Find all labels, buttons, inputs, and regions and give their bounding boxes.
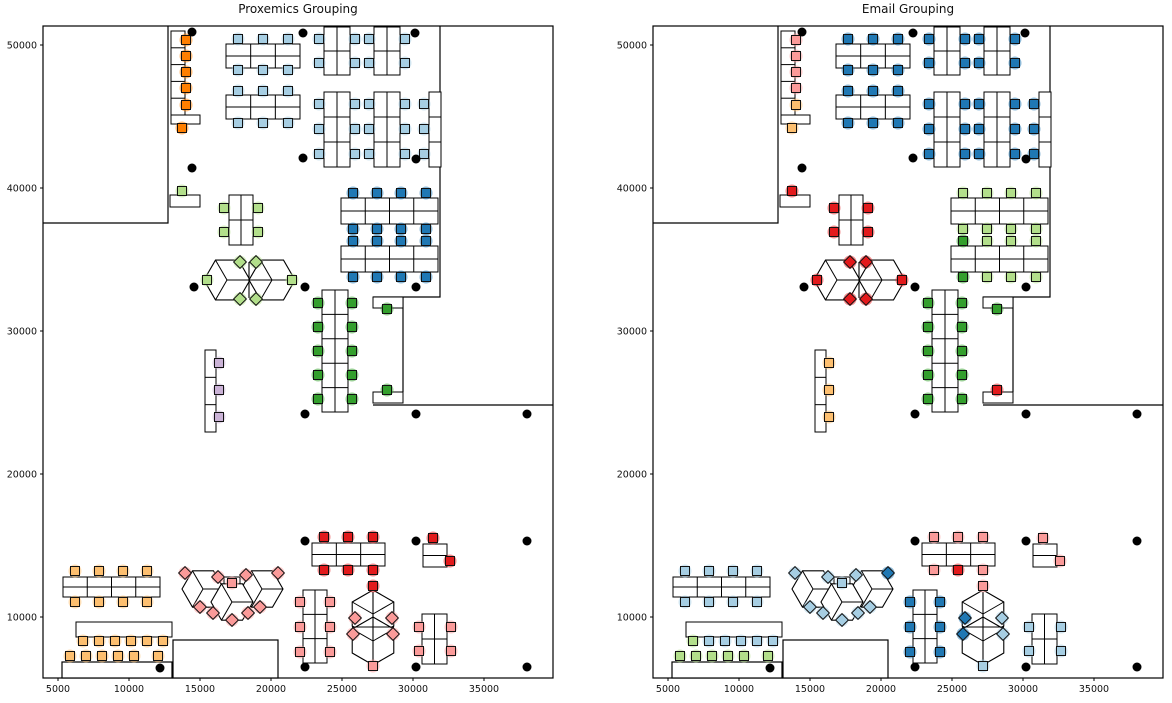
seat-marker	[422, 225, 431, 234]
y-tick-label: 40000	[7, 184, 37, 195]
seat-marker	[844, 66, 853, 75]
seat-marker	[838, 579, 847, 588]
seat-marker	[1039, 534, 1048, 543]
seat-marker	[1011, 59, 1020, 68]
column-dot	[1133, 663, 1142, 672]
seat-marker	[422, 273, 431, 282]
x-tick-label: 30000	[1008, 684, 1038, 695]
seat-marker	[228, 579, 237, 588]
x-tick-label: 5000	[656, 684, 680, 695]
room-outline	[783, 640, 888, 678]
seat-marker	[143, 567, 152, 576]
x-tick-label: 30000	[398, 684, 428, 695]
seat-marker	[961, 35, 970, 44]
seat-marker	[446, 557, 455, 566]
seat-marker	[930, 566, 939, 575]
email-panel: 5000100001500020000250003000035000100002…	[617, 26, 1163, 695]
seat-marker	[954, 533, 963, 542]
room-outline	[672, 662, 782, 678]
seat-marker	[422, 237, 431, 246]
seat-marker	[825, 359, 834, 368]
seat-marker	[127, 637, 136, 646]
column-dot	[156, 664, 165, 673]
column-dot	[911, 537, 920, 546]
seat-marker	[1011, 125, 1020, 134]
column-dot	[301, 663, 310, 672]
seat-marker	[936, 598, 945, 607]
seat-marker	[220, 228, 229, 237]
x-tick-label: 5000	[46, 684, 70, 695]
seat-marker	[422, 189, 431, 198]
seat-marker	[924, 395, 933, 404]
column-dot	[1022, 537, 1031, 546]
seat-marker	[1025, 647, 1034, 656]
x-tick-label: 25000	[327, 684, 357, 695]
seat-marker	[365, 59, 374, 68]
seat-marker	[365, 100, 374, 109]
seat-marker	[349, 273, 358, 282]
column-dot	[798, 164, 807, 173]
seat-marker	[130, 652, 139, 661]
column-dot	[1133, 410, 1142, 419]
seat-marker	[401, 100, 410, 109]
seat-marker	[114, 652, 123, 661]
seat-marker	[959, 225, 968, 234]
seat-marker	[215, 359, 224, 368]
desk	[1039, 92, 1051, 167]
seat-marker	[825, 386, 834, 395]
seat-marker	[182, 84, 191, 93]
seat-marker	[315, 125, 324, 134]
seat-marker	[383, 305, 392, 314]
seat-marker	[769, 637, 778, 646]
seat-marker	[753, 598, 762, 607]
column-dot	[188, 28, 197, 37]
seat-marker	[1032, 225, 1041, 234]
seat-marker	[1007, 237, 1016, 246]
seat-marker	[753, 637, 762, 646]
desk	[170, 195, 200, 207]
seat-marker	[415, 623, 424, 632]
seat-marker	[705, 567, 714, 576]
seat-marker	[401, 59, 410, 68]
seat-marker	[182, 68, 191, 77]
wall	[653, 26, 778, 223]
seat-marker	[961, 150, 970, 159]
seat-marker	[326, 648, 335, 657]
seat-marker	[320, 566, 329, 575]
desk	[686, 622, 782, 637]
seat-marker	[314, 323, 323, 332]
seat-marker	[961, 125, 970, 134]
seat-marker	[369, 566, 378, 575]
seat-marker	[959, 273, 968, 282]
seat-marker	[284, 119, 293, 128]
seat-marker	[1032, 273, 1041, 282]
seat-marker	[397, 237, 406, 246]
x-tick-label: 20000	[256, 684, 286, 695]
column-dot	[798, 28, 807, 37]
seat-marker	[326, 623, 335, 632]
room-outline	[173, 640, 278, 678]
seat-marker	[365, 125, 374, 134]
seat-marker	[979, 662, 988, 671]
column-dot	[412, 283, 421, 292]
seat-marker	[349, 237, 358, 246]
y-tick-label: 20000	[617, 470, 647, 481]
y-tick-label: 40000	[617, 184, 647, 195]
y-tick-label: 10000	[617, 613, 647, 624]
seat-marker	[1007, 189, 1016, 198]
seat-marker	[401, 35, 410, 44]
seat-marker	[936, 623, 945, 632]
column-dot	[523, 537, 532, 546]
seat-marker	[721, 637, 730, 646]
seat-marker	[71, 567, 80, 576]
seat-marker	[925, 150, 934, 159]
seat-marker	[975, 35, 984, 44]
seat-marker	[315, 150, 324, 159]
seat-marker	[401, 125, 410, 134]
seat-marker	[753, 567, 762, 576]
seat-marker	[788, 187, 797, 196]
seat-marker	[365, 35, 374, 44]
seat-marker	[844, 87, 853, 96]
seat-marker	[349, 225, 358, 234]
seat-marker	[234, 66, 243, 75]
seat-marker	[1057, 647, 1066, 656]
seat-marker	[314, 347, 323, 356]
seat-marker	[906, 623, 915, 632]
seat-marker	[954, 566, 963, 575]
y-tick-label: 20000	[7, 470, 37, 481]
column-dot	[523, 663, 532, 672]
column-dot	[911, 283, 920, 292]
seat-marker	[869, 119, 878, 128]
seat-marker	[958, 371, 967, 380]
column-dot	[301, 283, 310, 292]
seat-marker	[825, 413, 834, 422]
seat-marker	[254, 204, 263, 213]
seat-marker	[351, 59, 360, 68]
seat-marker	[959, 237, 968, 246]
seat-marker	[369, 582, 378, 591]
seat-marker	[349, 189, 358, 198]
y-tick-label: 30000	[7, 327, 37, 338]
seat-marker	[79, 637, 88, 646]
seat-marker	[215, 386, 224, 395]
seat-marker	[993, 386, 1002, 395]
column-dot	[1022, 663, 1031, 672]
seat-marker	[98, 652, 107, 661]
seat-marker	[792, 84, 801, 93]
seat-marker	[234, 35, 243, 44]
seat-marker	[676, 652, 685, 661]
seat-marker	[958, 347, 967, 356]
seat-marker	[369, 533, 378, 542]
seat-marker	[348, 347, 357, 356]
seat-marker	[1025, 623, 1034, 632]
seat-marker	[143, 598, 152, 607]
seat-marker	[1056, 557, 1065, 566]
x-tick-label: 10000	[114, 684, 144, 695]
seat-marker	[924, 347, 933, 356]
x-tick-label: 25000	[937, 684, 967, 695]
seat-marker	[415, 647, 424, 656]
seat-marker	[961, 59, 970, 68]
seat-marker	[373, 237, 382, 246]
column-dot	[1022, 410, 1031, 419]
seat-marker	[259, 119, 268, 128]
seat-marker	[979, 582, 988, 591]
seat-marker	[975, 125, 984, 134]
seat-marker	[234, 87, 243, 96]
seat-marker	[447, 623, 456, 632]
seat-marker	[82, 652, 91, 661]
seat-marker	[830, 204, 839, 213]
seat-marker	[864, 204, 873, 213]
seat-marker	[315, 59, 324, 68]
seat-marker	[288, 276, 297, 285]
seat-marker	[369, 662, 378, 671]
x-tick-label: 20000	[866, 684, 896, 695]
seat-marker	[894, 119, 903, 128]
seat-marker	[737, 637, 746, 646]
seat-marker	[1011, 150, 1020, 159]
seat-marker	[1007, 273, 1016, 282]
seat-marker	[259, 87, 268, 96]
seat-marker	[869, 35, 878, 44]
seat-marker	[925, 100, 934, 109]
seat-marker	[143, 637, 152, 646]
seat-marker	[993, 305, 1002, 314]
seat-marker	[296, 598, 305, 607]
seat-marker	[792, 68, 801, 77]
seat-marker	[844, 35, 853, 44]
seat-marker	[869, 66, 878, 75]
seat-marker	[924, 299, 933, 308]
seat-marker	[344, 533, 353, 542]
desk	[780, 195, 810, 207]
column-dot	[412, 155, 421, 164]
seat-marker	[692, 652, 701, 661]
column-dot	[800, 283, 809, 292]
wall	[43, 26, 168, 223]
seat-marker	[959, 189, 968, 198]
seat-marker	[979, 533, 988, 542]
seat-marker	[961, 100, 970, 109]
seat-marker	[420, 150, 429, 159]
seat-marker	[975, 59, 984, 68]
seat-marker	[259, 35, 268, 44]
room-outline	[62, 662, 172, 678]
seat-marker	[1030, 100, 1039, 109]
seat-marker	[894, 35, 903, 44]
seat-marker	[284, 87, 293, 96]
column-dot	[299, 154, 308, 163]
seat-marker	[259, 66, 268, 75]
seat-marker	[740, 652, 749, 661]
seat-marker	[958, 299, 967, 308]
seat-marker	[689, 637, 698, 646]
seat-marker	[397, 189, 406, 198]
floorplan-chart: 5000100001500020000250003000035000100002…	[0, 0, 1172, 703]
x-tick-label: 10000	[724, 684, 754, 695]
seat-marker	[447, 647, 456, 656]
y-tick-label: 50000	[7, 41, 37, 52]
seat-marker	[983, 237, 992, 246]
seat-marker	[95, 637, 104, 646]
seat-marker	[429, 534, 438, 543]
seat-marker	[813, 276, 822, 285]
seat-marker	[220, 204, 229, 213]
seat-marker	[154, 652, 163, 661]
seat-marker	[351, 125, 360, 134]
seat-marker	[284, 35, 293, 44]
column-dot	[301, 537, 310, 546]
seat-marker	[792, 52, 801, 61]
left-plot-title: Proxemics Grouping	[43, 2, 553, 16]
column-dot	[188, 164, 197, 173]
column-dot	[909, 29, 918, 38]
seat-marker	[792, 36, 801, 45]
seat-marker	[315, 100, 324, 109]
x-tick-label: 35000	[469, 684, 499, 695]
seat-marker	[320, 533, 329, 542]
seat-marker	[348, 299, 357, 308]
seat-marker	[203, 276, 212, 285]
seat-marker	[906, 598, 915, 607]
seat-marker	[348, 323, 357, 332]
seat-marker	[178, 187, 187, 196]
seat-marker	[178, 124, 187, 133]
seat-marker	[284, 66, 293, 75]
seat-marker	[373, 189, 382, 198]
seat-marker	[351, 150, 360, 159]
column-dot	[1022, 155, 1031, 164]
seat-marker	[420, 125, 429, 134]
figure: 5000100001500020000250003000035000100002…	[0, 0, 1172, 703]
seat-marker	[182, 101, 191, 110]
seat-marker	[71, 598, 80, 607]
seat-marker	[119, 598, 128, 607]
seat-marker	[314, 371, 323, 380]
seat-marker	[66, 652, 75, 661]
seat-marker	[975, 100, 984, 109]
seat-marker	[182, 52, 191, 61]
seat-marker	[1057, 623, 1066, 632]
y-tick-label: 10000	[7, 613, 37, 624]
seat-marker	[681, 598, 690, 607]
seat-marker	[365, 150, 374, 159]
seat-marker	[979, 566, 988, 575]
column-dot	[911, 410, 920, 419]
column-dot	[1021, 29, 1030, 38]
seat-marker	[344, 566, 353, 575]
seat-marker	[844, 119, 853, 128]
seat-marker	[924, 323, 933, 332]
seat-marker	[1032, 237, 1041, 246]
seat-marker	[764, 652, 773, 661]
seat-marker	[314, 299, 323, 308]
seat-marker	[326, 598, 335, 607]
seat-marker	[936, 648, 945, 657]
seat-marker	[1030, 125, 1039, 134]
seat-marker	[373, 273, 382, 282]
seat-marker	[894, 87, 903, 96]
right-plot-title: Email Grouping	[653, 2, 1163, 16]
column-dot	[412, 663, 421, 672]
seat-marker	[729, 567, 738, 576]
seat-marker	[975, 150, 984, 159]
seat-marker	[983, 225, 992, 234]
column-dot	[190, 283, 199, 292]
seat-marker	[792, 101, 801, 110]
seat-marker	[864, 228, 873, 237]
column-dot	[1133, 537, 1142, 546]
seat-marker	[383, 386, 392, 395]
x-tick-label: 15000	[185, 684, 215, 695]
y-tick-label: 30000	[617, 327, 647, 338]
seat-marker	[958, 323, 967, 332]
desk	[429, 92, 441, 167]
column-dot	[1022, 283, 1031, 292]
seat-marker	[397, 273, 406, 282]
seat-marker	[182, 36, 191, 45]
x-tick-label: 35000	[1079, 684, 1109, 695]
seat-marker	[1011, 35, 1020, 44]
column-dot	[412, 537, 421, 546]
seat-marker	[397, 225, 406, 234]
desk	[76, 622, 172, 637]
seat-marker	[705, 637, 714, 646]
column-dot	[411, 29, 420, 38]
seat-marker	[1011, 100, 1020, 109]
seat-marker	[373, 225, 382, 234]
seat-marker	[894, 66, 903, 75]
seat-marker	[898, 276, 907, 285]
seat-marker	[254, 228, 263, 237]
seat-marker	[351, 100, 360, 109]
seat-marker	[925, 35, 934, 44]
seat-marker	[1030, 150, 1039, 159]
seat-marker	[296, 648, 305, 657]
seat-marker	[708, 652, 717, 661]
seat-marker	[705, 598, 714, 607]
column-dot	[911, 663, 920, 672]
seat-marker	[869, 87, 878, 96]
seat-marker	[958, 395, 967, 404]
seat-marker	[930, 533, 939, 542]
seat-marker	[401, 150, 410, 159]
column-dot	[301, 410, 310, 419]
seat-marker	[351, 35, 360, 44]
seat-marker	[315, 35, 324, 44]
y-tick-label: 50000	[617, 41, 647, 52]
seat-marker	[924, 371, 933, 380]
column-dot	[766, 664, 775, 673]
seat-marker	[906, 648, 915, 657]
seat-marker	[296, 623, 305, 632]
column-dot	[299, 29, 308, 38]
seat-marker	[95, 598, 104, 607]
seat-marker	[830, 228, 839, 237]
column-dot	[909, 154, 918, 163]
seat-marker	[1032, 189, 1041, 198]
seat-marker	[788, 124, 797, 133]
seat-marker	[119, 567, 128, 576]
x-tick-label: 15000	[795, 684, 825, 695]
